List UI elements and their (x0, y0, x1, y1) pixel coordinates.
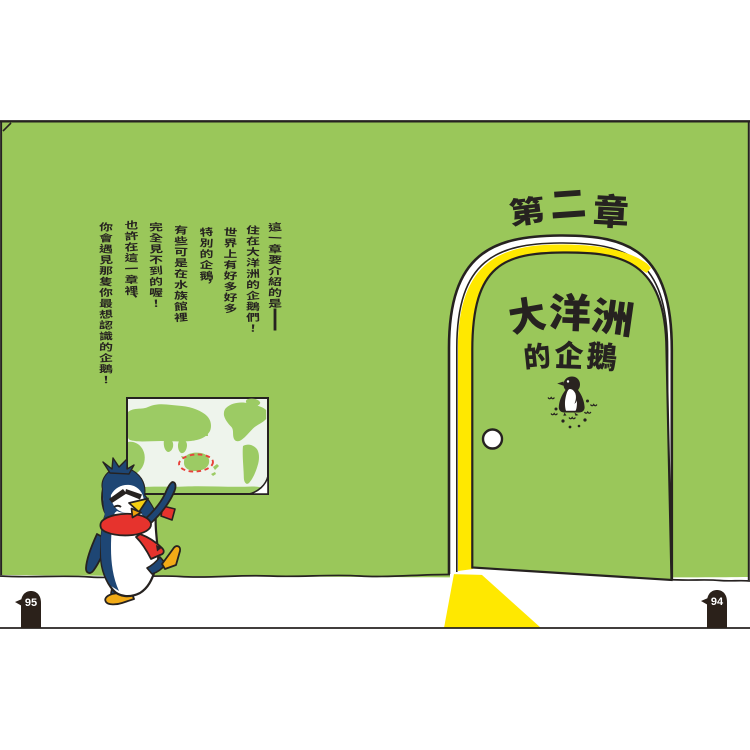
svg-text:94: 94 (711, 596, 724, 608)
svg-text:95: 95 (25, 597, 37, 609)
